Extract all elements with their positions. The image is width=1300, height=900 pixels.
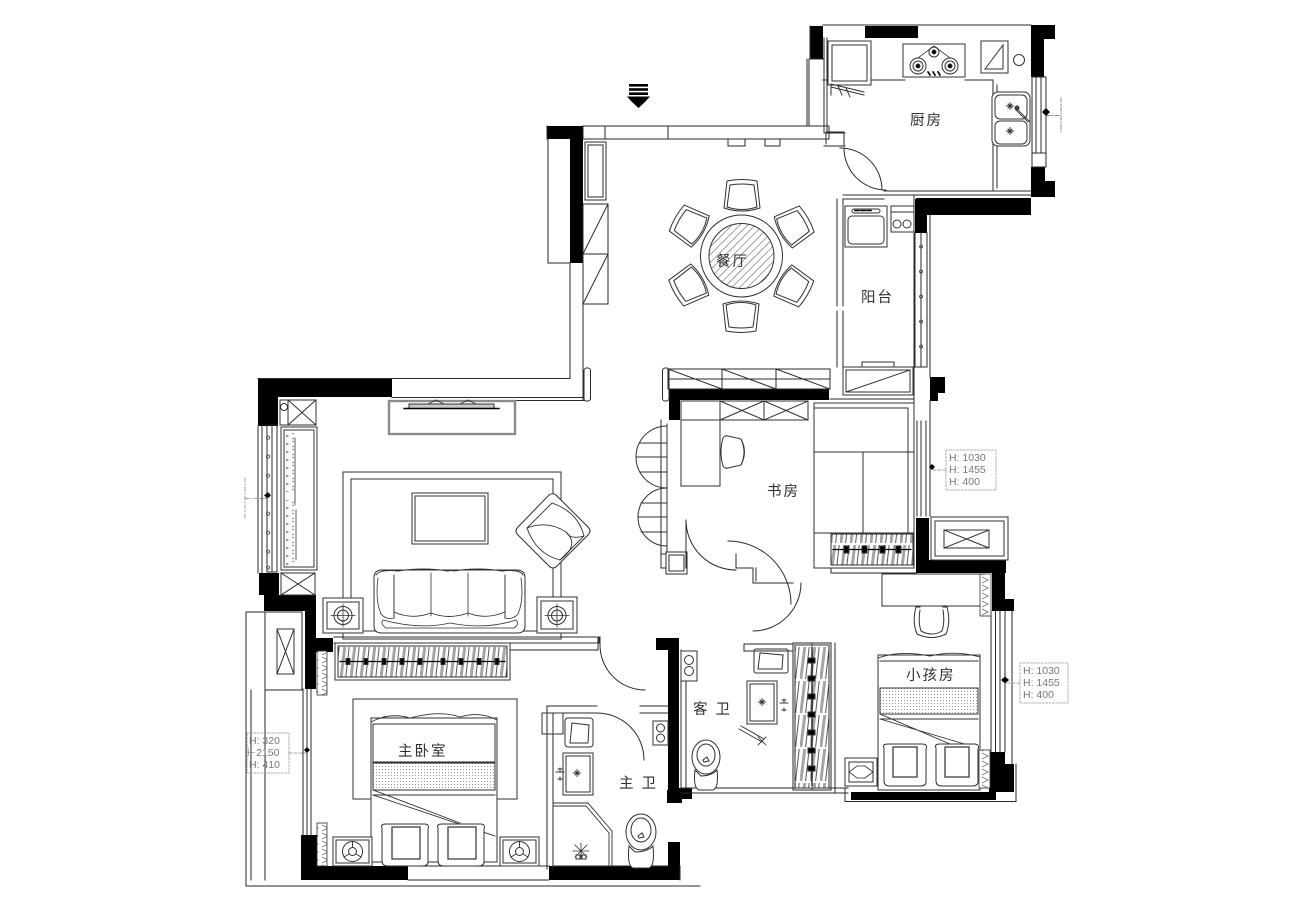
svg-text:⊢2150: ⊢2150: [247, 747, 280, 759]
svg-text:主卧室: 主卧室: [398, 743, 448, 760]
svg-text:书房: 书房: [767, 483, 800, 500]
svg-text:H: 320: H: 320: [249, 735, 280, 747]
svg-text:主 卫: 主 卫: [619, 775, 658, 792]
svg-text:客 卫: 客 卫: [693, 701, 732, 718]
svg-text:阳台: 阳台: [861, 289, 894, 306]
svg-text:小孩房: 小孩房: [906, 667, 956, 684]
svg-text:厨房: 厨房: [910, 112, 943, 129]
svg-text:H: 1455: H: 1455: [949, 464, 986, 476]
svg-text:H: 1455: H: 1455: [1023, 677, 1060, 689]
svg-text:H: 410: H: 410: [249, 759, 280, 771]
svg-text:H: 400: H: 400: [1023, 689, 1054, 701]
svg-text:餐厅: 餐厅: [716, 253, 749, 270]
svg-text:H: 1030: H: 1030: [1023, 665, 1060, 677]
svg-text:H: 400: H: 400: [949, 476, 980, 488]
svg-text:H: 1030: H: 1030: [949, 452, 986, 464]
